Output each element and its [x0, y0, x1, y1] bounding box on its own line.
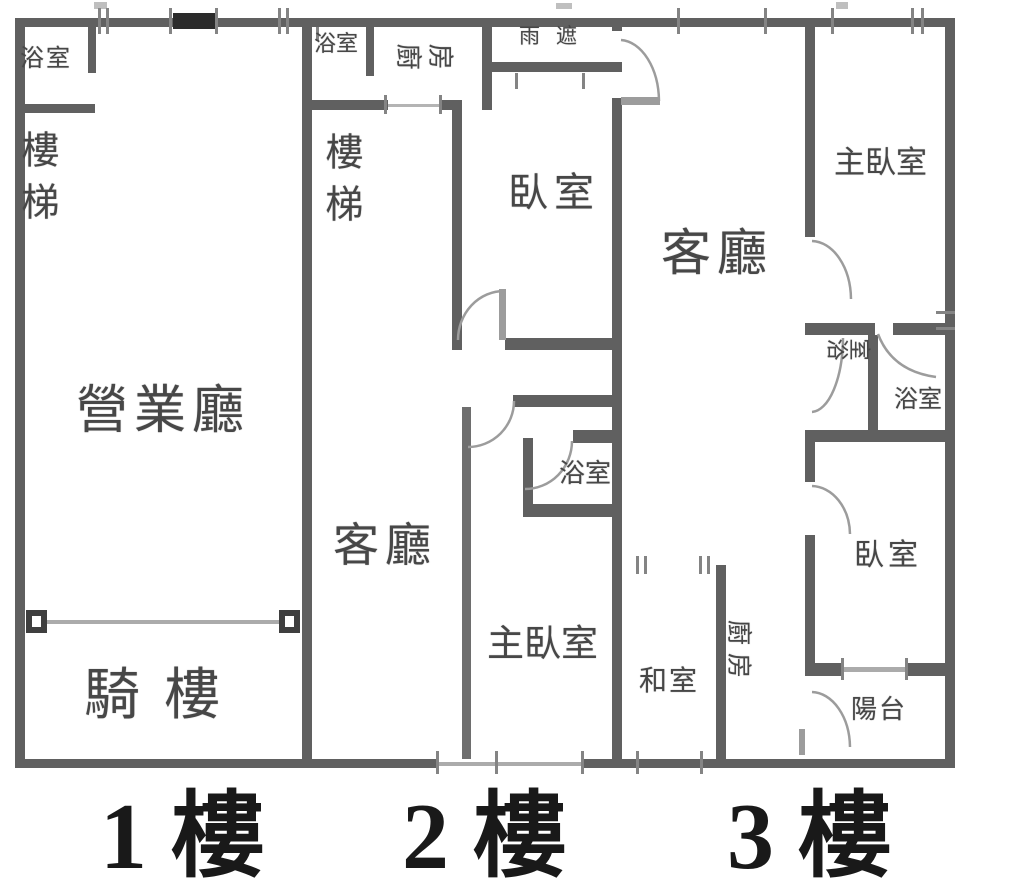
window-tick: [936, 327, 955, 330]
window-tick: [98, 8, 101, 34]
wall: [908, 663, 947, 676]
wall: [622, 18, 955, 27]
window-tick: [581, 751, 584, 774]
wall: [482, 27, 492, 110]
opening-tick: [636, 556, 639, 574]
wall: [441, 100, 462, 110]
room-label-f2-living-room: 客廳: [333, 521, 437, 569]
room-label-f2-bathroom-top: 浴室: [314, 32, 358, 55]
floor-caption-1: 1 樓: [100, 788, 265, 887]
room-label-f1-business-hall: 營業廳: [76, 384, 250, 439]
wall: [505, 338, 617, 350]
room-label-f1-bathroom: 浴室: [20, 46, 72, 71]
wall: [805, 323, 875, 335]
wall: [88, 27, 96, 73]
room-label-f2-rain-canopy: 雨遮: [519, 26, 593, 48]
rotated-char: 浴: [825, 339, 848, 361]
window-tick: [905, 658, 908, 680]
door-arc: [621, 40, 659, 101]
window-tick: [677, 8, 680, 34]
opening-tick: [699, 556, 702, 574]
window-tick: [495, 751, 498, 774]
room-label-f2-kitchen: 廚房: [392, 46, 456, 73]
room-label-f2-master-bedroom: 主臥室: [487, 625, 598, 664]
speck: [836, 2, 848, 9]
window-tick: [215, 8, 218, 34]
speck: [556, 3, 572, 9]
window-tick: [106, 8, 109, 34]
floor2-doors: [458, 289, 572, 489]
wall: [945, 18, 955, 768]
wall: [523, 438, 533, 514]
wall: [612, 18, 622, 31]
wall: [452, 110, 462, 350]
window-tick: [439, 95, 442, 114]
wall: [513, 395, 617, 407]
door-arc: [812, 692, 850, 747]
floorplan-drawing: [0, 0, 1013, 896]
window-tick: [515, 73, 518, 89]
room-label-f3-bedroom: 臥室: [854, 540, 922, 572]
door-leaf: [499, 289, 506, 340]
window-tick: [286, 8, 289, 34]
door-leaf: [799, 729, 805, 755]
storefront-post-inner: [32, 616, 41, 627]
storefront-post-inner: [285, 616, 294, 627]
door-arc: [812, 486, 850, 534]
wall: [805, 27, 815, 237]
wall: [15, 759, 312, 768]
rotated-char: 廚: [394, 44, 421, 76]
wall: [622, 759, 955, 768]
rotated-char: 室: [847, 339, 870, 361]
window-tick: [636, 751, 639, 774]
rotated-char: 房: [426, 44, 453, 76]
window-tick: [169, 8, 172, 34]
room-label-f2-bedroom: 臥室: [508, 172, 600, 214]
wall: [805, 535, 815, 667]
wall: [573, 430, 617, 443]
scan-specks: [94, 2, 848, 9]
window-line: [843, 667, 908, 672]
room-label-f1-arcade: 騎樓: [84, 666, 244, 725]
door-arc: [458, 291, 504, 340]
room-label-f3-master-bedroom: 主臥室: [834, 147, 927, 180]
window-line: [438, 762, 583, 766]
door-leaf: [621, 97, 660, 105]
opening-tick: [707, 556, 710, 574]
door-opening-line: [388, 104, 441, 107]
wall: [492, 62, 622, 72]
window-tick: [921, 8, 924, 34]
floor-caption-2: 2 樓: [402, 788, 567, 887]
room-label-f3-living-room: 客廳: [661, 227, 773, 280]
door-arc: [878, 334, 936, 377]
window-tick: [764, 8, 767, 34]
room-label-f1-stairs: 樓梯: [15, 130, 55, 234]
window-tick: [582, 73, 585, 89]
wall: [15, 104, 95, 113]
room-label-f2-bathroom: 浴室: [559, 460, 611, 487]
window-bar: [173, 13, 217, 29]
window-tick: [436, 751, 439, 774]
window-tick: [278, 8, 281, 34]
window-tick: [841, 658, 844, 680]
wall: [312, 759, 438, 768]
wall: [312, 100, 388, 110]
floorplan-page: 浴室 樓梯 營業廳 騎樓 浴室 廚房 雨遮 樓梯 臥室 客廳 浴室 主臥室 客廳…: [0, 0, 1013, 896]
room-label-f3-tatami-room: 和室: [639, 666, 699, 695]
door-arc: [468, 401, 514, 447]
room-label-f3-bathroom-left: 浴室: [826, 338, 870, 361]
wall: [583, 759, 612, 768]
wall: [523, 504, 617, 517]
window-tick: [936, 311, 955, 314]
wall: [805, 430, 945, 442]
window-tick: [384, 95, 387, 114]
wall: [302, 18, 312, 768]
storefront-line: [47, 620, 279, 624]
window-tick: [911, 8, 914, 34]
room-label-f3-balcony: 陽台: [851, 696, 907, 723]
window-tick: [700, 751, 703, 774]
speck: [94, 2, 107, 9]
room-label-f3-kitchen: 廚房: [725, 620, 751, 686]
floor1-storefront: [26, 610, 300, 633]
wall: [15, 18, 312, 27]
room-label-f2-stairs: 樓梯: [319, 132, 359, 236]
door-arc: [812, 241, 851, 299]
floor-caption-3: 3 樓: [727, 788, 892, 887]
opening-tick: [644, 556, 647, 574]
wall: [462, 407, 471, 759]
wall: [366, 27, 374, 76]
room-label-f3-bathroom-right: 浴室: [894, 387, 942, 412]
window-tick: [831, 8, 834, 34]
wall: [805, 442, 815, 482]
wall: [805, 663, 843, 676]
